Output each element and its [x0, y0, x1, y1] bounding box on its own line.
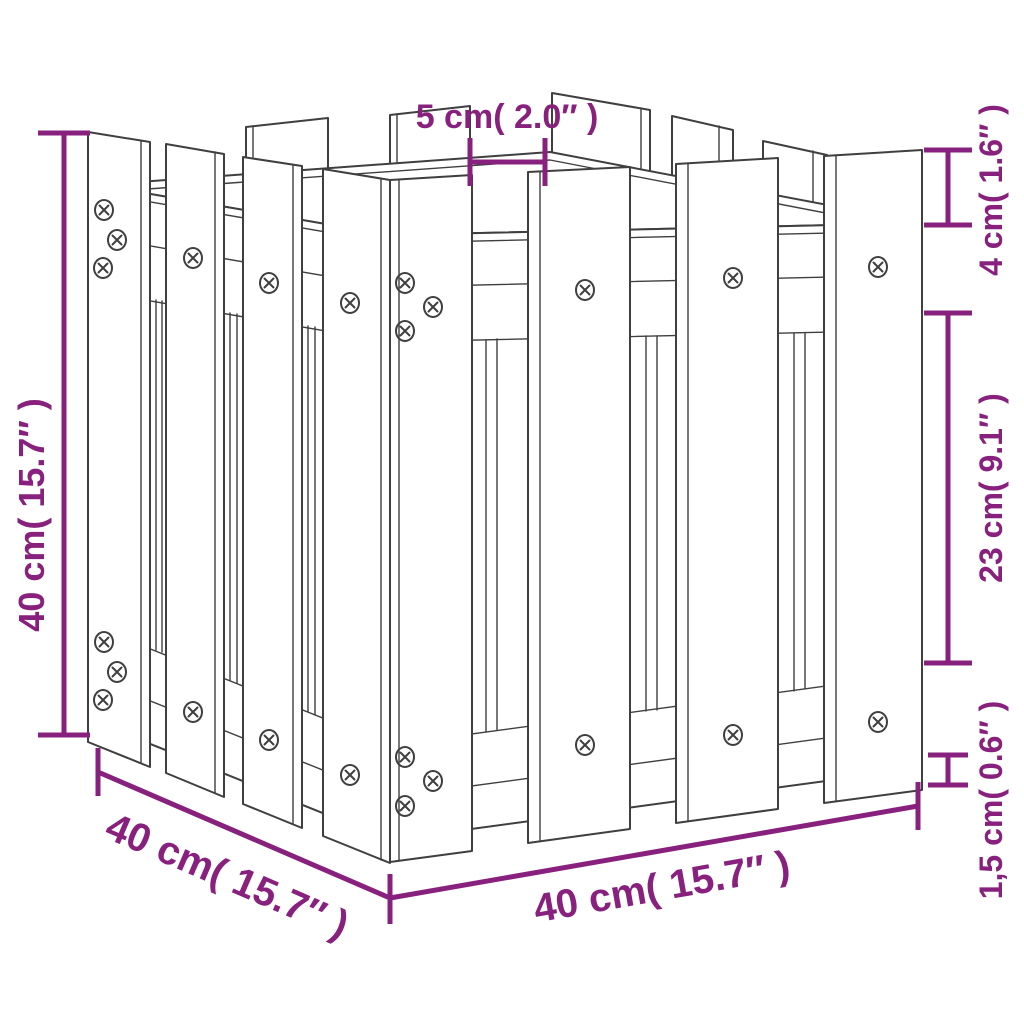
dimension-label: 40 cm( 15.7″ ) [11, 398, 52, 631]
dimension-height-left: 40 cm( 15.7″ ) [11, 133, 90, 735]
dimension-mid-span-right: 23 cm( 9.1″ ) [924, 313, 1009, 663]
dimension-base-gap-right: 1,5 cm( 0.6″ ) [928, 701, 1009, 900]
picket [323, 169, 390, 863]
dimension-label: 4 cm( 1.6″ ) [973, 104, 1009, 276]
planter-dimension-diagram: 40 cm( 15.7″ ) 5 cm( 2.0″ ) 4 cm( 1.6″ )… [0, 0, 1024, 1024]
dimension-line [924, 150, 972, 225]
dimension-label: 23 cm( 9.1″ ) [973, 393, 1009, 583]
dimension-line [924, 313, 972, 663]
dimension-line [928, 755, 968, 785]
picket [824, 150, 922, 803]
dimension-top-offset-right: 4 cm( 1.6″ ) [924, 104, 1009, 276]
dimension-label: 5 cm( 2.0″ ) [416, 98, 599, 136]
picket [676, 158, 778, 823]
dimension-label: 40 cm( 15.7″ ) [530, 843, 793, 931]
dimension-label: 1,5 cm( 0.6″ ) [973, 701, 1009, 900]
planter-line-drawing [88, 93, 922, 863]
picket [528, 167, 630, 843]
